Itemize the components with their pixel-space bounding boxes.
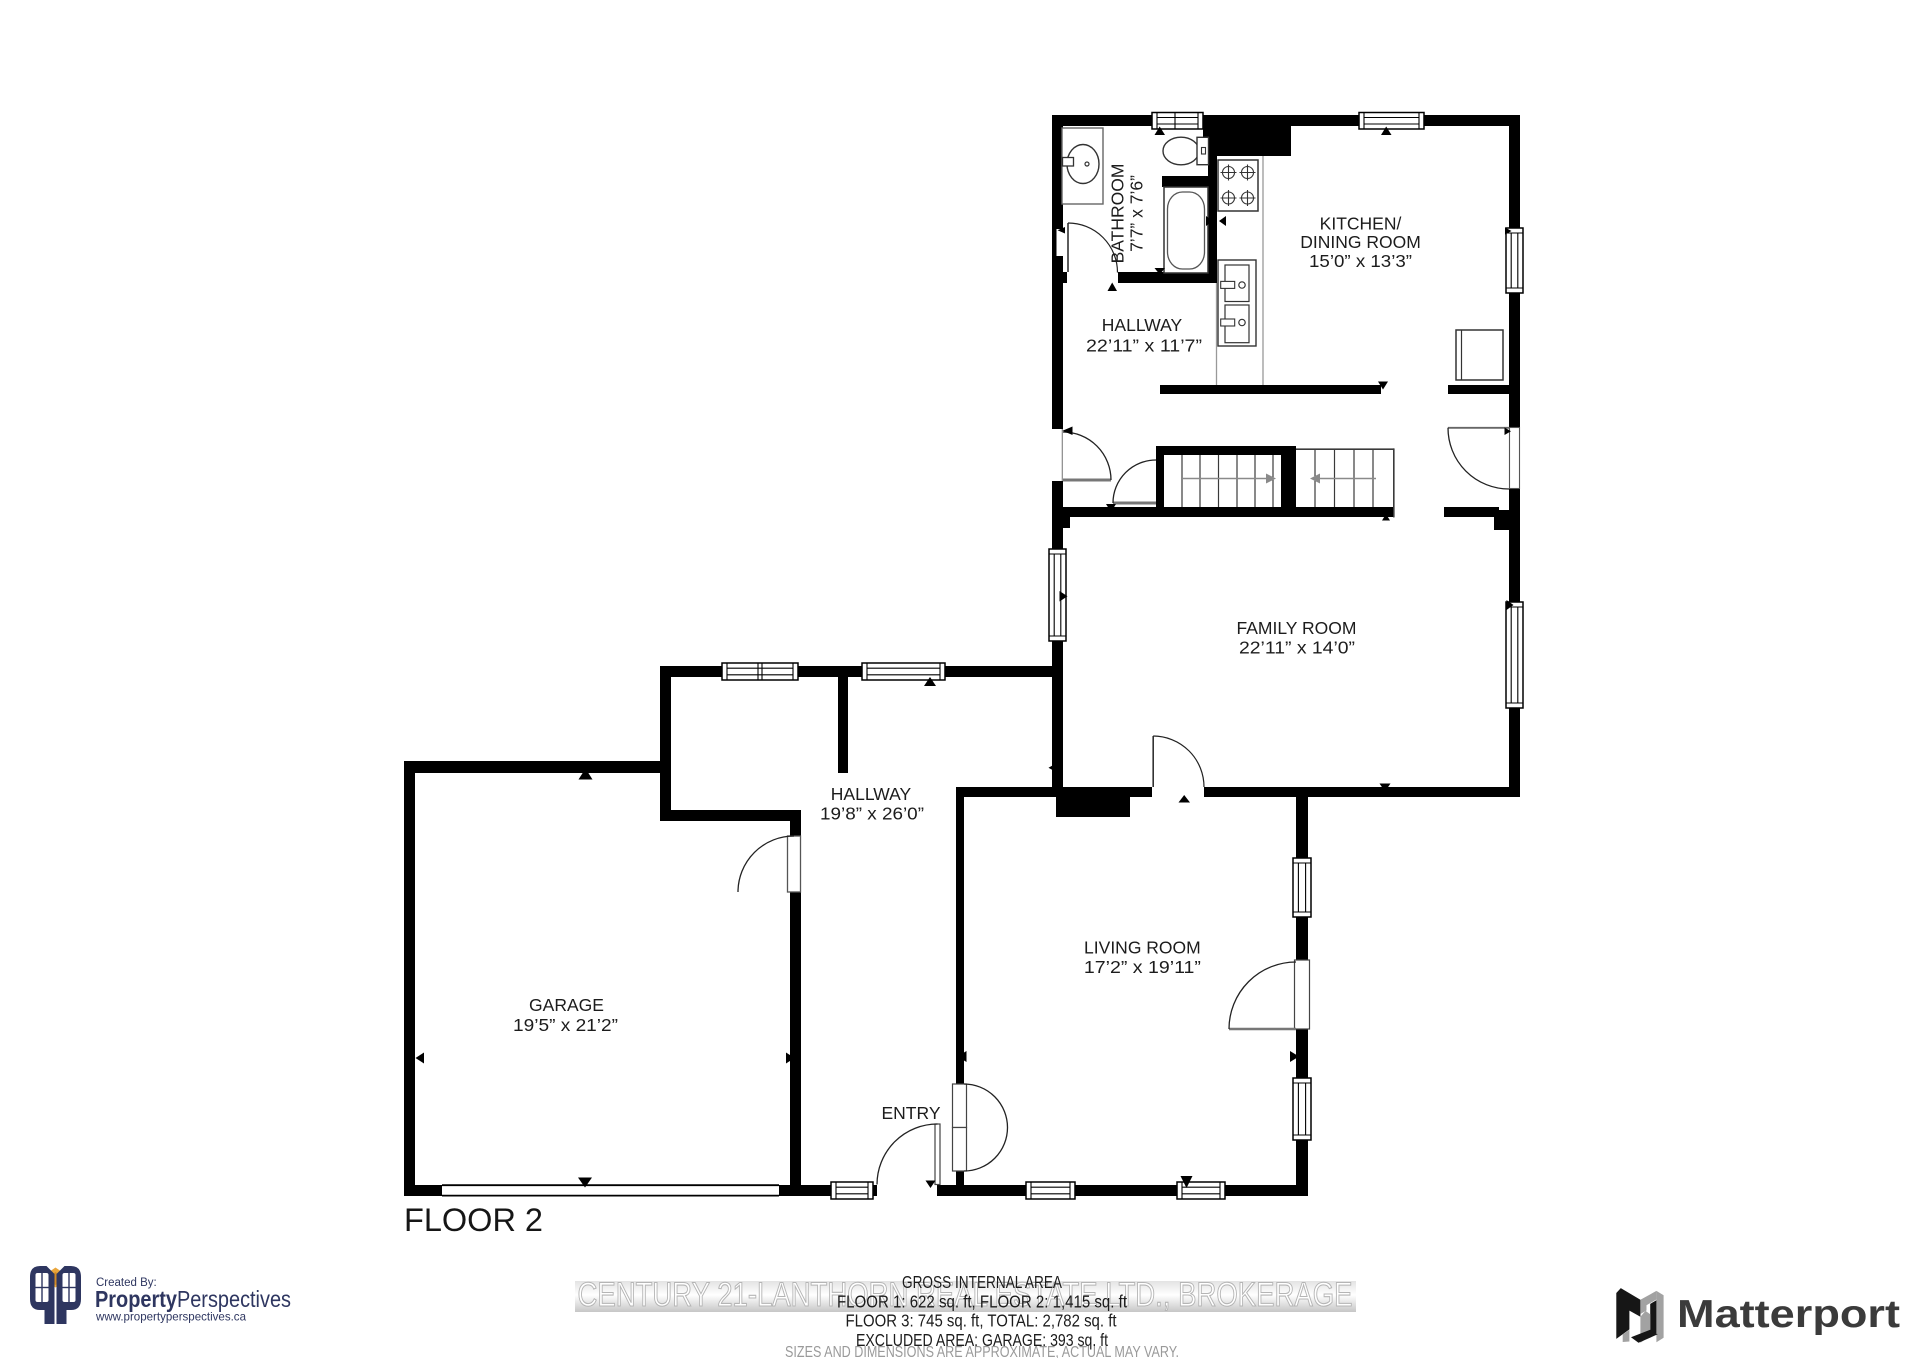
- svg-text:DINING ROOM: DINING ROOM: [1300, 232, 1421, 252]
- svg-text:22’11” x 11’7”: 22’11” x 11’7”: [1086, 336, 1202, 356]
- svg-text:PropertyPerspectives: PropertyPerspectives: [95, 1286, 291, 1312]
- svg-text:FLOOR 3: 745 sq. ft, TOTAL: 2,: FLOOR 3: 745 sq. ft, TOTAL: 2,782 sq. ft: [846, 1311, 1117, 1331]
- svg-text:17’2” x 19’11”: 17’2” x 19’11”: [1084, 957, 1201, 977]
- svg-text:HALLWAY: HALLWAY: [831, 784, 912, 804]
- svg-text:22’11” x 14’0”: 22’11” x 14’0”: [1239, 638, 1355, 658]
- svg-text:FLOOR 1: 622 sq. ft, FLOOR 2:: FLOOR 1: 622 sq. ft, FLOOR 2: 1,415 sq. …: [837, 1291, 1127, 1311]
- svg-text:LIVING ROOM: LIVING ROOM: [1084, 938, 1201, 958]
- svg-text:GROSS INTERNAL AREA: GROSS INTERNAL AREA: [902, 1272, 1062, 1292]
- svg-text:BATHROOM: BATHROOM: [1108, 164, 1128, 264]
- svg-text:FLOOR 2: FLOOR 2: [404, 1202, 543, 1238]
- svg-text:Matterport: Matterport: [1677, 1293, 1900, 1336]
- svg-text:www.propertyperspectives.ca: www.propertyperspectives.ca: [95, 1310, 246, 1324]
- svg-text:SIZES AND DIMENSIONS ARE APPRO: SIZES AND DIMENSIONS ARE APPROXIMATE, AC…: [785, 1344, 1179, 1358]
- svg-text:7’7” x 7’6”: 7’7” x 7’6”: [1127, 175, 1147, 252]
- svg-text:19’5” x 21’2”: 19’5” x 21’2”: [513, 1015, 618, 1035]
- svg-text:KITCHEN/: KITCHEN/: [1320, 213, 1402, 233]
- svg-text:19’8” x 26’0”: 19’8” x 26’0”: [820, 804, 924, 824]
- svg-text:FAMILY ROOM: FAMILY ROOM: [1237, 618, 1357, 638]
- svg-text:GARAGE: GARAGE: [529, 995, 604, 1015]
- svg-text:15’0” x 13’3”: 15’0” x 13’3”: [1309, 251, 1412, 271]
- svg-text:HALLWAY: HALLWAY: [1102, 315, 1183, 335]
- svg-text:ENTRY: ENTRY: [882, 1103, 941, 1123]
